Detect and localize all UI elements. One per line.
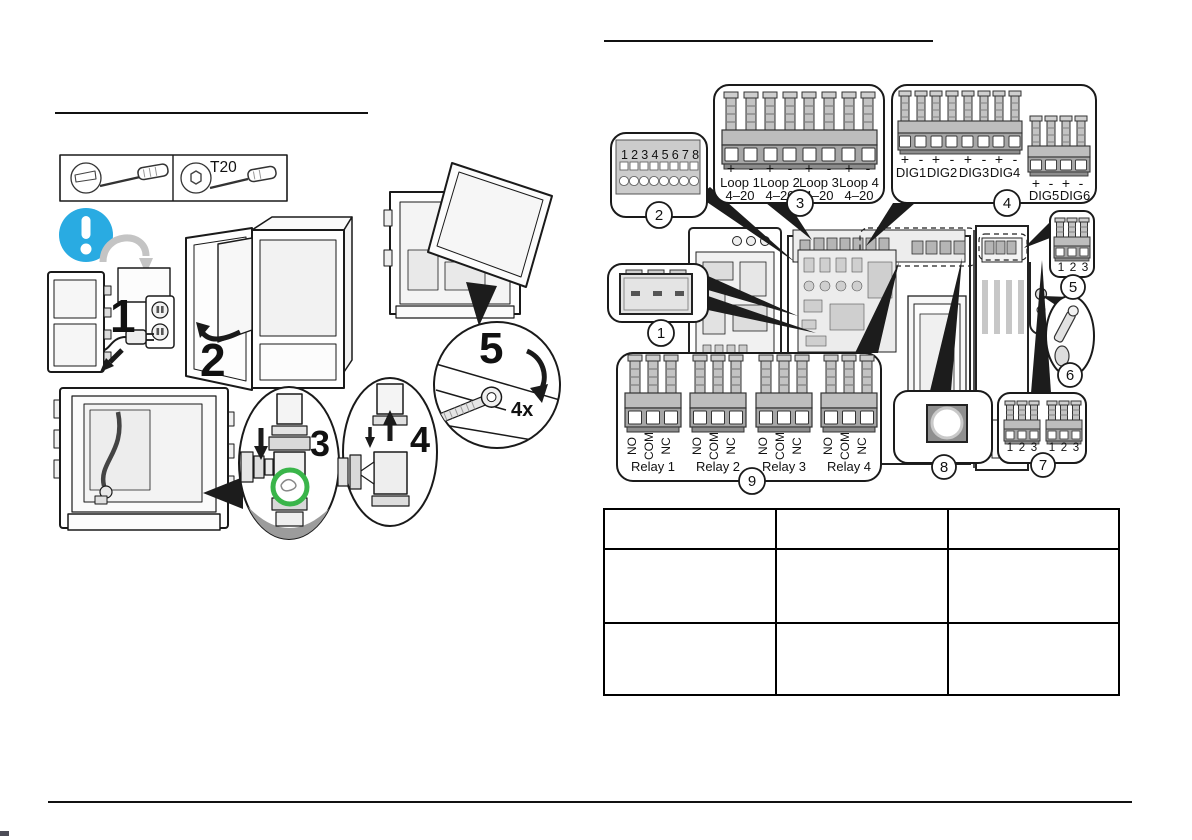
svg-text:NO: NO bbox=[625, 437, 639, 455]
svg-text:6: 6 bbox=[1066, 367, 1074, 384]
step-2-open-enclosure: 2 bbox=[186, 217, 352, 390]
step-number-1: 1 bbox=[110, 290, 136, 342]
svg-text:NC: NC bbox=[790, 437, 804, 455]
relay-4-label: Relay 4 bbox=[827, 459, 871, 474]
svg-text:9: 9 bbox=[748, 473, 756, 490]
reference-table bbox=[603, 508, 1120, 696]
callout-marker-2: 2 bbox=[646, 202, 672, 228]
svg-text:2: 2 bbox=[1070, 260, 1077, 274]
terminal-block-123 bbox=[1054, 218, 1090, 261]
svg-text:2: 2 bbox=[1061, 442, 1067, 454]
svg-text:COM: COM bbox=[773, 432, 787, 460]
dig2-label: DIG2 bbox=[927, 165, 957, 180]
svg-text:-: - bbox=[788, 160, 793, 176]
loop-4-range: 4–20 bbox=[845, 188, 874, 203]
table-cell bbox=[948, 623, 1119, 695]
svg-text:4: 4 bbox=[1003, 195, 1011, 212]
svg-text:COM: COM bbox=[642, 432, 656, 460]
torx-size-label: T20 bbox=[210, 159, 237, 176]
open-enclosure-front bbox=[54, 388, 243, 530]
dig6-label: DIG6 bbox=[1060, 188, 1090, 203]
right-figure-wiring-overview: 12345678 bbox=[608, 85, 1096, 494]
table-cell bbox=[776, 509, 948, 549]
relay-1-label: Relay 1 bbox=[631, 459, 675, 474]
tools-legend: T20 bbox=[60, 155, 287, 201]
svg-text:+: + bbox=[727, 160, 735, 176]
svg-text:2: 2 bbox=[1019, 442, 1025, 454]
callout-marker-1: 1 bbox=[648, 320, 674, 346]
table-cell bbox=[776, 623, 948, 695]
callout-marker-8: 8 bbox=[932, 455, 956, 479]
callout-box-digital-inputs: +- +- +- +- DIG1 DIG2 DIG3 DIG4 bbox=[892, 85, 1096, 203]
svg-text:3: 3 bbox=[1082, 260, 1089, 274]
callout-box-terminal-123: 1 2 3 bbox=[1050, 211, 1094, 277]
svg-text:+: + bbox=[766, 160, 774, 176]
dig3-label: DIG3 bbox=[959, 165, 989, 180]
step-number-4: 4 bbox=[410, 419, 430, 460]
table-cell bbox=[776, 549, 948, 623]
relay-3-label: Relay 3 bbox=[762, 459, 806, 474]
conduit-plug-icon bbox=[932, 408, 962, 438]
step-3-fitting-detail: 3 bbox=[239, 387, 339, 545]
svg-text:NO: NO bbox=[690, 437, 704, 455]
svg-text:-: - bbox=[827, 160, 832, 176]
svg-text:NO: NO bbox=[756, 437, 770, 455]
callout-marker-7: 7 bbox=[1031, 453, 1055, 477]
table-cell bbox=[604, 549, 776, 623]
svg-text:3: 3 bbox=[796, 195, 804, 212]
dip-switch-digits: 12345678 bbox=[621, 148, 702, 162]
terminal-123-numbers: 1 2 3 bbox=[1058, 260, 1089, 274]
svg-text:1: 1 bbox=[1049, 442, 1055, 454]
relay-2-label: Relay 2 bbox=[696, 459, 740, 474]
svg-text:NC: NC bbox=[855, 437, 869, 455]
svg-text:-: - bbox=[749, 160, 754, 176]
callout-box-relays: NO COM NC NO COM NC NO COM NC NO COM NC … bbox=[617, 353, 881, 481]
svg-text:+: + bbox=[805, 160, 813, 176]
svg-text:8: 8 bbox=[940, 459, 948, 476]
callout-marker-6: 6 bbox=[1058, 363, 1082, 387]
svg-text:3: 3 bbox=[1073, 442, 1079, 454]
dig5-label: DIG5 bbox=[1029, 188, 1059, 203]
dig4-label: DIG4 bbox=[990, 165, 1020, 180]
svg-text:1: 1 bbox=[1007, 442, 1013, 454]
table-cell bbox=[604, 509, 776, 549]
callout-box-conduit-opening bbox=[894, 391, 992, 463]
svg-text:1: 1 bbox=[657, 325, 665, 342]
green-seal-highlight bbox=[273, 470, 307, 504]
dig1-label: DIG1 bbox=[896, 165, 926, 180]
svg-text:7: 7 bbox=[1039, 457, 1047, 474]
step-4-fitting-detail: 4 bbox=[338, 378, 437, 526]
step-number-2: 2 bbox=[200, 334, 226, 386]
svg-text:NC: NC bbox=[659, 437, 673, 455]
svg-text:3: 3 bbox=[1031, 442, 1037, 454]
svg-text:+: + bbox=[845, 160, 853, 176]
callout-marker-9: 9 bbox=[739, 468, 765, 494]
svg-text:COM: COM bbox=[707, 432, 721, 460]
table-cell bbox=[604, 623, 776, 695]
left-figure-installation-steps: T20 bbox=[48, 155, 560, 545]
callout-marker-5: 5 bbox=[1061, 275, 1085, 299]
svg-text:1: 1 bbox=[1058, 260, 1065, 274]
step-number-3: 3 bbox=[310, 423, 330, 464]
screw-count-label: 4x bbox=[511, 399, 533, 421]
figures-canvas: T20 bbox=[0, 0, 1192, 840]
svg-text:2: 2 bbox=[655, 207, 663, 224]
callout-box-power-connector bbox=[608, 264, 708, 322]
loop-1-range: 4–20 bbox=[726, 188, 755, 203]
svg-text:-: - bbox=[866, 160, 871, 176]
step-number-5: 5 bbox=[479, 324, 503, 373]
svg-text:COM: COM bbox=[838, 432, 852, 460]
table-cell bbox=[948, 509, 1119, 549]
svg-text:NC: NC bbox=[724, 437, 738, 455]
callout-box-analog-loops: +- +- +- +- Loop 1 Loop 2 Loop 3 Loop 4 … bbox=[714, 85, 884, 203]
svg-text:5: 5 bbox=[1069, 279, 1077, 296]
step-1-module-unplug: 1 bbox=[48, 238, 174, 372]
table-cell bbox=[948, 549, 1119, 623]
callout-marker-3: 3 bbox=[787, 190, 813, 216]
svg-text:NO: NO bbox=[821, 437, 835, 455]
callout-marker-4: 4 bbox=[994, 190, 1020, 216]
manual-page: T20 bbox=[0, 0, 1192, 840]
